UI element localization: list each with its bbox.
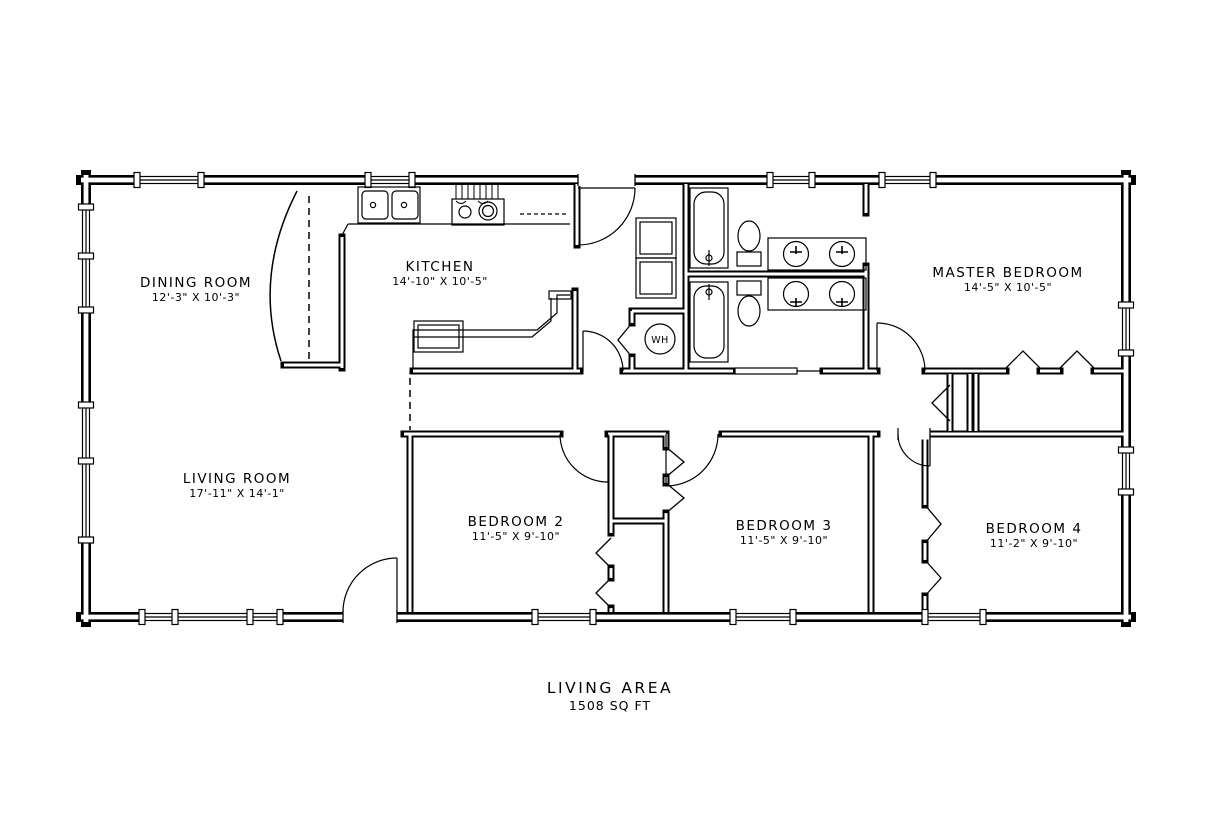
closet-doors [596,323,1095,608]
window-master-right [1119,302,1134,356]
bedroom4-dims: 11'-2" X 9'-10" [990,537,1078,550]
master-toilet [737,221,761,266]
window-bedroom3-front [730,610,796,625]
living-area-value: 1508 SQ FT [569,698,651,713]
bedroom4-closet-door-icon [925,560,941,596]
hall-bath-pocket-door [735,368,821,374]
kitchen-label: KITCHEN [406,259,475,275]
living-area-title: LIVING AREA [547,679,673,697]
bedroom2-label: BEDROOM 2 [468,514,565,530]
dining-room-label: DINING ROOM [140,275,252,291]
master-vanity [768,238,866,270]
window-living-front [139,610,283,625]
window-bedroom4-right [1119,447,1134,495]
living-room-dims: 17'-11" X 14'-1" [189,487,285,500]
kitchen-dims: 14'-10" X 10'-5" [392,275,488,288]
bedroom3-closet-door-icon [666,447,684,477]
window-dining-top [134,173,204,188]
hall-vanity [768,278,866,310]
bedroom2-dims: 11'-5" X 9'-10" [472,530,560,543]
master-bedroom-door [877,323,925,371]
walls [81,175,1131,622]
exterior-door-openings [343,174,635,623]
bedroom2-closet-door-icon [596,538,611,568]
dining-room-dims: 12'-3" X 10'-3" [152,291,240,304]
window-kitchen-sink [365,173,415,188]
hall-kitchen-door [583,331,623,371]
window-bedroom4-front [922,610,986,625]
bedroom4-closet-door-icon [925,505,941,543]
back-door [578,188,635,245]
window-bath-top [767,173,815,188]
master-bedroom-dims: 14'-5" X 10'-5" [964,281,1052,294]
wh-closet-door-icon [618,323,632,357]
bedroom2-door [560,434,608,482]
bedroom2-closet-door-icon [596,578,611,608]
master-closet-door-icon [1059,351,1095,369]
water-heater-label: WH [651,335,669,346]
window-bedroom2-front [532,610,596,625]
floor-plan-canvas: DINING ROOM 12'-3" X 10'-3" KITCHEN 14'-… [0,0,1208,836]
window-dining-left [79,204,94,313]
bedroom3-door [666,434,718,486]
master-bathtub [690,188,728,268]
stove [452,185,504,225]
window-living-left [79,402,94,543]
front-door [343,558,397,612]
utility-fixtures [636,218,676,354]
bedroom4-label: BEDROOM 4 [986,521,1083,537]
living-room-label: LIVING ROOM [183,471,291,487]
curved-wall [270,191,297,361]
kitchen-sink [358,187,420,223]
hall-bathtub [690,282,728,362]
hall-toilet [737,281,761,326]
floor-plan-sheet: DINING ROOM 12'-3" X 10'-3" KITCHEN 14'-… [0,0,1208,836]
bedroom3-dims: 11'-5" X 9'-10" [740,534,828,547]
kitchen-island [413,291,571,368]
master-closet-door-icon [1005,351,1041,369]
window-master-top [879,173,936,188]
master-bedroom-label: MASTER BEDROOM [932,265,1083,281]
bedroom3-label: BEDROOM 3 [736,518,833,534]
laundry-cabinet [636,218,676,298]
bedroom3-closet-door-icon [666,483,684,513]
